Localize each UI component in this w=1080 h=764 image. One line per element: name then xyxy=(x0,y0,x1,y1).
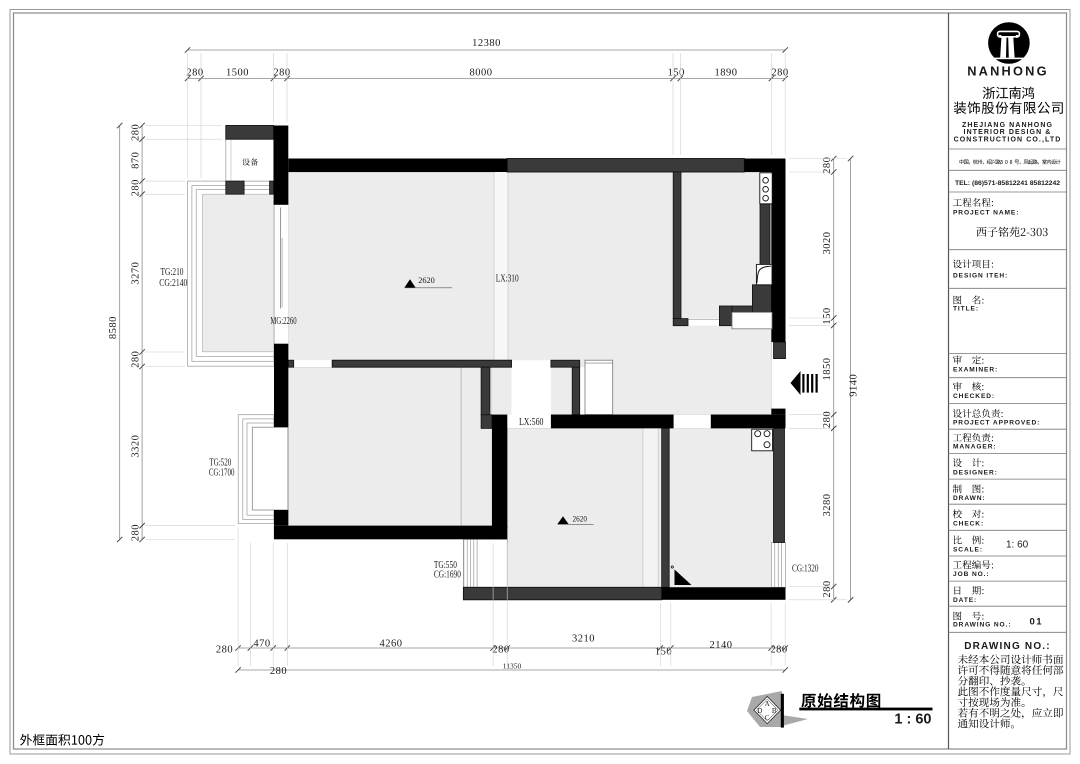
svg-text:C: C xyxy=(765,714,770,722)
svg-text:150: 150 xyxy=(655,647,672,658)
svg-text:3020: 3020 xyxy=(822,232,833,255)
svg-text:280: 280 xyxy=(822,157,833,174)
svg-text:2140: 2140 xyxy=(710,640,733,651)
svg-text:D: D xyxy=(757,707,762,715)
svg-text:280: 280 xyxy=(130,351,141,368)
svg-text:CHECKED:: CHECKED: xyxy=(953,393,995,400)
svg-text:NANHONG: NANHONG xyxy=(967,63,1049,78)
svg-text:B: B xyxy=(772,707,777,715)
svg-text:280: 280 xyxy=(273,68,290,79)
svg-text:2620: 2620 xyxy=(418,276,435,285)
svg-text:1850: 1850 xyxy=(822,358,833,381)
svg-text:DESIGNER:: DESIGNER: xyxy=(953,470,998,477)
svg-text:DESIGN ITEH:: DESIGN ITEH: xyxy=(953,273,1008,280)
svg-text:MANAGER:: MANAGER: xyxy=(953,444,996,451)
svg-text:2620: 2620 xyxy=(573,515,588,524)
svg-text:3320: 3320 xyxy=(130,435,141,458)
svg-text:280: 280 xyxy=(130,524,141,541)
svg-text:CG:1700: CG:1700 xyxy=(209,468,235,479)
svg-text:CG:1690: CG:1690 xyxy=(434,569,461,580)
svg-text:280: 280 xyxy=(822,411,833,428)
svg-text:470: 470 xyxy=(253,639,270,650)
svg-text:9140: 9140 xyxy=(849,374,860,397)
svg-text:TEL: (86)571-85812241 85812: TEL: (86)571-85812241 85812242 xyxy=(955,180,1060,187)
svg-text:8000: 8000 xyxy=(470,68,493,79)
svg-text:PROJECT NAME:: PROJECT NAME: xyxy=(953,209,1019,216)
svg-text:280: 280 xyxy=(822,580,833,597)
svg-text:4260: 4260 xyxy=(380,639,403,650)
svg-text:12380: 12380 xyxy=(472,38,501,49)
svg-text:280: 280 xyxy=(771,68,788,79)
svg-text:11350: 11350 xyxy=(503,662,522,671)
svg-text:150: 150 xyxy=(822,307,833,324)
svg-text:LX:560: LX:560 xyxy=(519,417,544,428)
svg-text:SCALE:: SCALE: xyxy=(953,547,983,554)
svg-text:1 : 60: 1 : 60 xyxy=(894,712,931,728)
svg-text:A: A xyxy=(765,700,770,708)
svg-text:CHECK:: CHECK: xyxy=(953,521,984,528)
svg-text:CG:1320: CG:1320 xyxy=(792,564,819,575)
svg-text:280: 280 xyxy=(130,124,141,141)
svg-text:1: 60: 1: 60 xyxy=(1006,540,1029,551)
svg-text:3270: 3270 xyxy=(130,262,141,285)
svg-text:JOB NO.:: JOB NO.: xyxy=(953,571,990,578)
svg-text:MG:2260: MG:2260 xyxy=(270,316,296,327)
svg-text:PROJECT APPROVED:: PROJECT APPROVED: xyxy=(953,420,1040,427)
svg-text:1500: 1500 xyxy=(226,68,249,79)
svg-text:DATE:: DATE: xyxy=(953,597,977,604)
svg-text:870: 870 xyxy=(130,152,141,169)
svg-text:DRAWING NO.:: DRAWING NO.: xyxy=(964,641,1051,652)
svg-text:DRAWN:: DRAWN: xyxy=(953,495,986,502)
svg-text:ZHEJIANG NANHONG: ZHEJIANG NANHONG xyxy=(962,122,1053,129)
svg-text:3280: 3280 xyxy=(822,494,833,517)
svg-text:3210: 3210 xyxy=(572,634,595,645)
svg-text:DRAWING NO.:: DRAWING NO.: xyxy=(953,622,1011,629)
svg-text:LX:310: LX:310 xyxy=(496,274,519,285)
svg-text:01: 01 xyxy=(1030,617,1044,628)
svg-text:150: 150 xyxy=(668,68,685,79)
svg-text:280: 280 xyxy=(270,666,287,677)
svg-text:280: 280 xyxy=(216,645,233,656)
svg-text:CONSTRUCTION CO.,LTD: CONSTRUCTION CO.,LTD xyxy=(954,136,1062,143)
svg-text:TG:210: TG:210 xyxy=(161,267,184,278)
svg-text:8580: 8580 xyxy=(108,316,119,339)
svg-text:CG:2140: CG:2140 xyxy=(159,278,187,289)
svg-text:280: 280 xyxy=(130,179,141,196)
svg-text:INTERIOR DESIGN &: INTERIOR DESIGN & xyxy=(964,129,1052,136)
svg-text:EXAMINER:: EXAMINER: xyxy=(953,367,998,374)
svg-text:1890: 1890 xyxy=(715,68,738,79)
svg-text:TITLE:: TITLE: xyxy=(953,306,979,313)
